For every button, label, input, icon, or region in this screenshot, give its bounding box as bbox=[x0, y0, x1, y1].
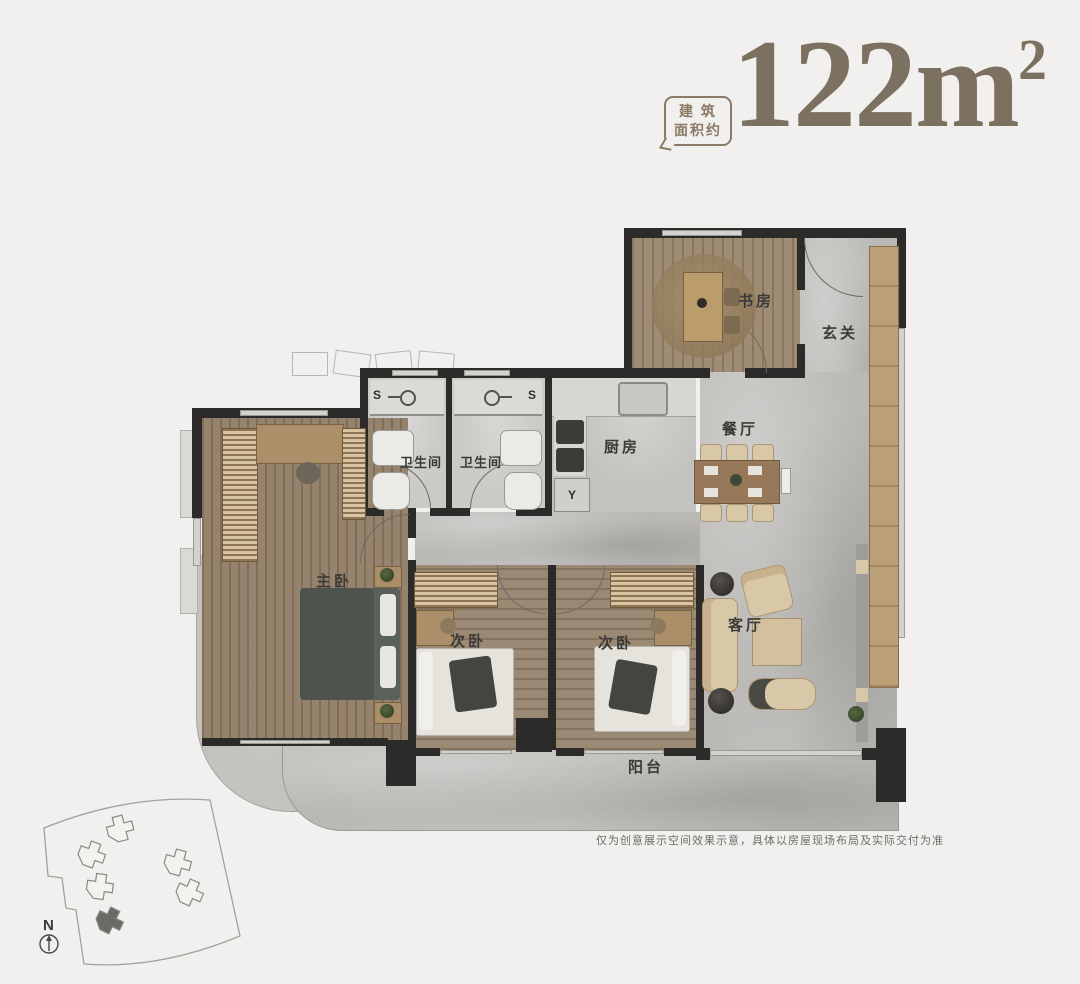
bathroom-2-sink bbox=[500, 430, 542, 466]
living-sofa bbox=[702, 598, 738, 692]
dining-placemat bbox=[704, 488, 718, 497]
bedroom-3-pillow bbox=[672, 650, 686, 726]
master-desk bbox=[256, 424, 344, 464]
shower-2-marker: S bbox=[528, 388, 536, 402]
study-chair bbox=[724, 316, 740, 334]
bedroom-3-blanket bbox=[608, 659, 658, 716]
dining-chair bbox=[752, 504, 774, 522]
kitchen-sink bbox=[618, 382, 668, 416]
label-balcony: 阳台 bbox=[628, 756, 664, 777]
wall-study-left bbox=[624, 236, 632, 376]
terrace-dashed-line bbox=[250, 565, 253, 743]
wall-bed2-bottom bbox=[416, 748, 440, 756]
kitchen-stove-burner bbox=[556, 420, 584, 444]
dining-chair bbox=[726, 504, 748, 522]
dining-placemat bbox=[748, 466, 762, 475]
label-dining: 餐厅 bbox=[722, 418, 758, 439]
master-wardrobe-left bbox=[222, 428, 258, 562]
pier-master-bed2 bbox=[386, 740, 416, 786]
floor-plan-page: 建 筑 面积约 122m2 bbox=[0, 0, 1080, 984]
master-wardrobe-right bbox=[342, 428, 366, 520]
wall-bath-bottom-mid bbox=[430, 508, 470, 516]
window-master-top bbox=[240, 410, 328, 416]
site-boundary bbox=[44, 799, 240, 965]
window-bed2-bottom bbox=[440, 750, 512, 754]
window-master-bottom bbox=[240, 740, 330, 744]
foyer-cabinet bbox=[869, 246, 899, 688]
bedroom-2-wardrobe bbox=[414, 572, 498, 608]
window-bath1-top bbox=[392, 370, 438, 376]
plant-icon bbox=[380, 568, 394, 582]
shower-1-marker: S bbox=[373, 388, 381, 402]
bedroom-3-chair bbox=[650, 618, 666, 634]
laundry-marker: Y bbox=[568, 488, 576, 502]
plant-icon bbox=[380, 704, 394, 718]
compass: N bbox=[40, 917, 58, 953]
wall-kitchen-left bbox=[545, 378, 552, 512]
site-building bbox=[162, 847, 194, 878]
shower-arm-icon bbox=[388, 396, 400, 398]
wall-bed3-bottom-b bbox=[664, 748, 696, 756]
wall-bed3-bottom-a bbox=[556, 748, 584, 756]
wall-corridor-left-pier bbox=[408, 508, 416, 538]
study-desk-item bbox=[697, 298, 707, 308]
dining-centerpiece bbox=[730, 474, 742, 486]
label-kitchen: 厨房 bbox=[604, 436, 640, 457]
plant-icon bbox=[848, 706, 864, 722]
pier-bed2-bed3 bbox=[516, 718, 552, 752]
window-bath2-top bbox=[464, 370, 510, 376]
area-value: 122m2 bbox=[732, 22, 1047, 148]
corridor-floor bbox=[415, 512, 700, 565]
bedroom-2-blanket bbox=[449, 655, 498, 712]
site-plan-sketch: N bbox=[28, 778, 248, 978]
label-bedroom-3: 次卧 bbox=[598, 632, 634, 653]
bathroom-2-toilet bbox=[504, 472, 542, 510]
label-study: 书房 bbox=[738, 290, 774, 311]
pier-living-balcony-right bbox=[862, 748, 876, 760]
site-building bbox=[104, 813, 135, 844]
wall-right-pier bbox=[876, 728, 906, 802]
shower-head-icon bbox=[400, 390, 416, 406]
window-living-balcony bbox=[710, 750, 862, 756]
site-building bbox=[85, 872, 114, 900]
label-foyer: 玄关 bbox=[822, 322, 858, 343]
master-stool bbox=[296, 462, 320, 484]
ledge-item bbox=[856, 688, 868, 702]
area-tag-line1: 建 筑 bbox=[679, 102, 717, 121]
site-building bbox=[75, 838, 108, 870]
sketch-box bbox=[292, 352, 328, 376]
living-chaise bbox=[748, 678, 816, 710]
label-bathroom-2: 卫生间 bbox=[460, 452, 502, 471]
wall-master-left bbox=[192, 408, 202, 518]
area-number: 122m bbox=[732, 15, 1018, 154]
label-master-bedroom: 主卧 bbox=[316, 570, 352, 591]
dining-chair bbox=[700, 504, 722, 522]
living-side-table bbox=[710, 572, 734, 596]
disclaimer-text: 仅为创意展示空间效果示意，具体以房屋现场布局及实际交付为准 bbox=[500, 832, 1040, 848]
label-bedroom-2: 次卧 bbox=[450, 630, 486, 651]
dining-side-item bbox=[781, 468, 791, 494]
master-pillow bbox=[380, 646, 396, 688]
window-study-top bbox=[662, 230, 742, 236]
laundry-unit: Y bbox=[554, 478, 590, 512]
bedroom-3-wardrobe bbox=[610, 572, 694, 608]
window-master-left bbox=[193, 518, 201, 566]
bathroom-1-toilet bbox=[372, 472, 410, 510]
area-tag-line2: 面积约 bbox=[674, 121, 722, 140]
shower-head-icon bbox=[484, 390, 500, 406]
label-bathroom-1: 卫生间 bbox=[400, 452, 442, 471]
ledge-item bbox=[856, 560, 868, 574]
window-right-side bbox=[898, 328, 905, 638]
kitchen-stove-burner bbox=[556, 448, 584, 472]
pier-living-balcony-left bbox=[696, 748, 710, 760]
site-building-highlighted bbox=[93, 904, 127, 938]
shower-arm-icon bbox=[500, 396, 512, 398]
living-side-table bbox=[708, 688, 734, 714]
dining-placemat bbox=[748, 488, 762, 497]
master-pillow bbox=[380, 594, 396, 636]
site-building bbox=[173, 876, 207, 909]
dining-placemat bbox=[704, 466, 718, 475]
label-living: 客厅 bbox=[728, 614, 764, 635]
area-tag: 建 筑 面积约 bbox=[664, 96, 732, 146]
bedroom-2-pillow bbox=[419, 652, 433, 730]
wall-bath-divider bbox=[446, 378, 452, 512]
area-superscript: 2 bbox=[1018, 27, 1047, 92]
compass-north-label: N bbox=[43, 917, 54, 934]
window-bed3-bottom bbox=[584, 750, 664, 754]
